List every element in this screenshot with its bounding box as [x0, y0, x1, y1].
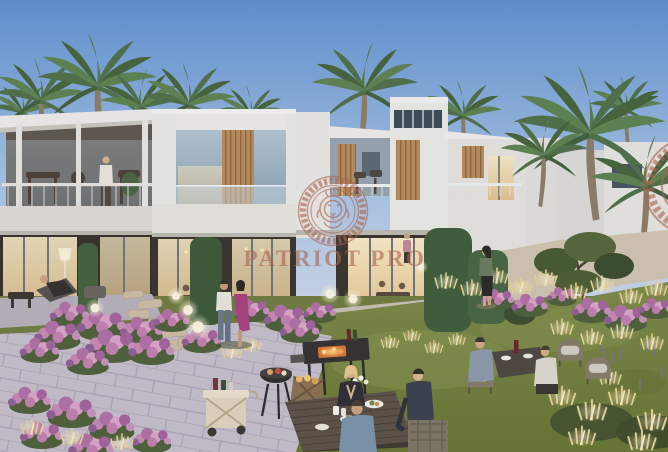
watermark-text: PATRIOT PRO	[244, 246, 427, 271]
dusk-tint	[0, 0, 668, 452]
render-image: PATRIOT PRO	[0, 0, 668, 452]
